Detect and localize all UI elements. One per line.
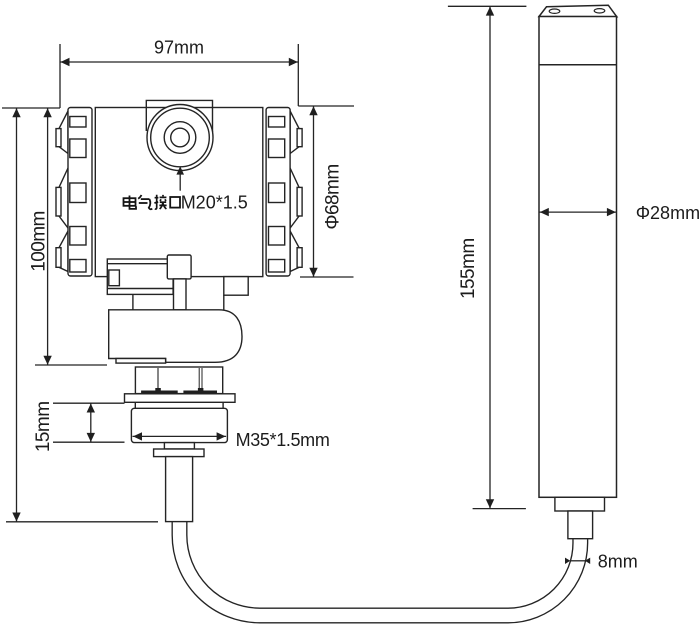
- svg-text:Φ68mm: Φ68mm: [322, 164, 343, 229]
- svg-text:8mm: 8mm: [598, 552, 638, 572]
- svg-text:15mm: 15mm: [33, 402, 54, 453]
- svg-text:97mm: 97mm: [154, 38, 204, 58]
- svg-text:155mm: 155mm: [458, 238, 479, 299]
- svg-text:M20*1.5: M20*1.5: [181, 193, 248, 213]
- svg-text:100mm: 100mm: [29, 211, 50, 272]
- svg-text:Φ28mm: Φ28mm: [636, 203, 700, 223]
- svg-text:M35*1.5mm: M35*1.5mm: [236, 430, 330, 450]
